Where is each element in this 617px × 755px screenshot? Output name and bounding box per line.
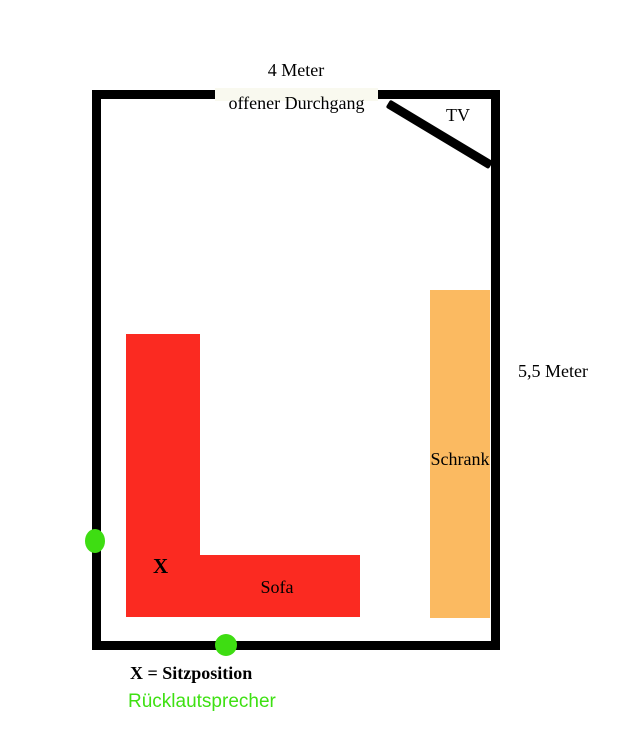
sofa-shape: X Sofa [126,334,360,617]
legend-seat-position: X = Sitzposition [130,664,252,684]
cabinet-rect: Schrank [430,290,490,618]
sofa-label: Sofa [235,577,319,598]
rear-speaker-dot-bottom [215,634,237,656]
doorway-label: offener Durchgang [215,94,378,114]
right-dimension-label: 5,5 Meter [518,362,588,382]
rear-speaker-dot-left [85,529,105,553]
seat-position-marker: X [153,554,168,579]
top-dimension-label: 4 Meter [92,61,500,81]
cabinet-label: Schrank [431,450,490,470]
tv-label: TV [446,106,470,126]
legend-rear-speaker: Rücklautsprecher [128,691,276,713]
room-plan-diagram: 4 Meter offener Durchgang TV 5,5 Meter S… [0,0,617,755]
